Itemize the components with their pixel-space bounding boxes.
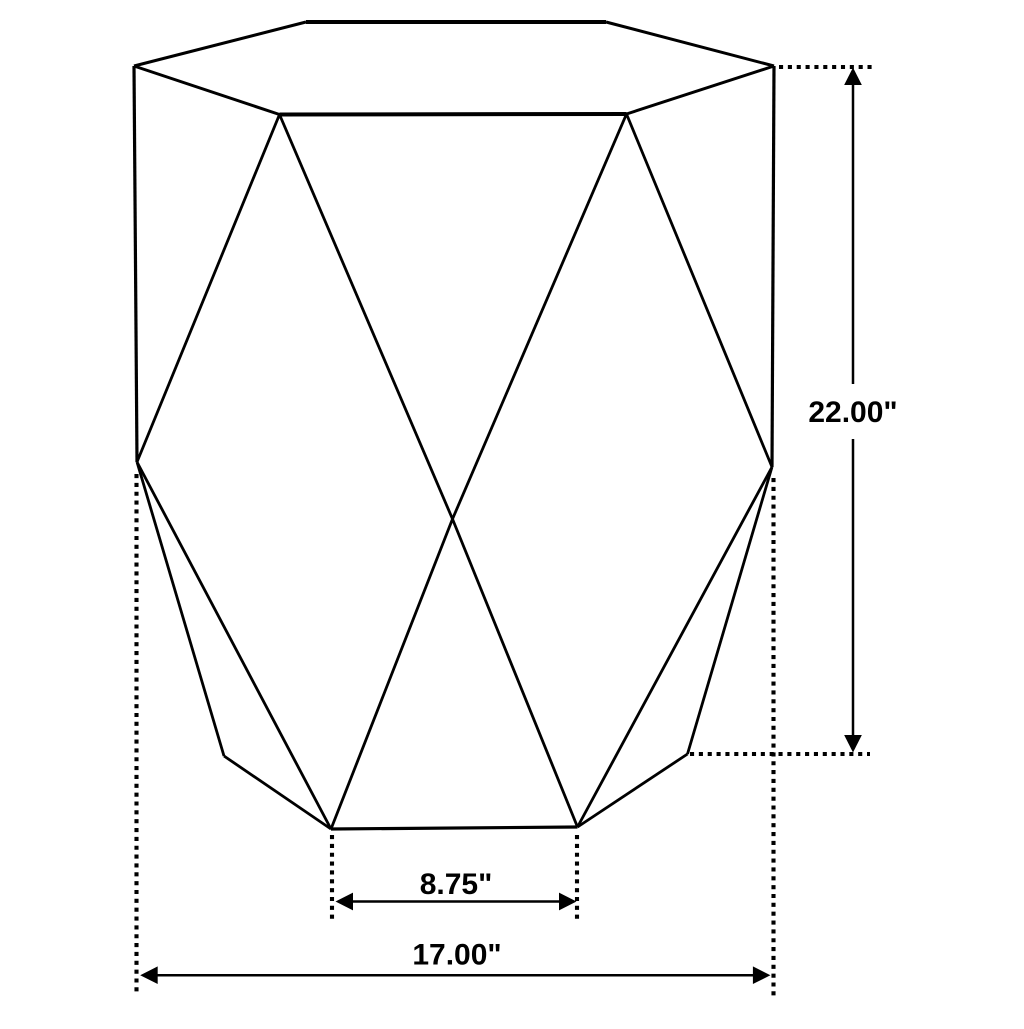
- svg-text:17.00": 17.00": [412, 939, 501, 972]
- svg-text:8.75": 8.75": [420, 868, 493, 901]
- svg-text:22.00": 22.00": [808, 396, 897, 429]
